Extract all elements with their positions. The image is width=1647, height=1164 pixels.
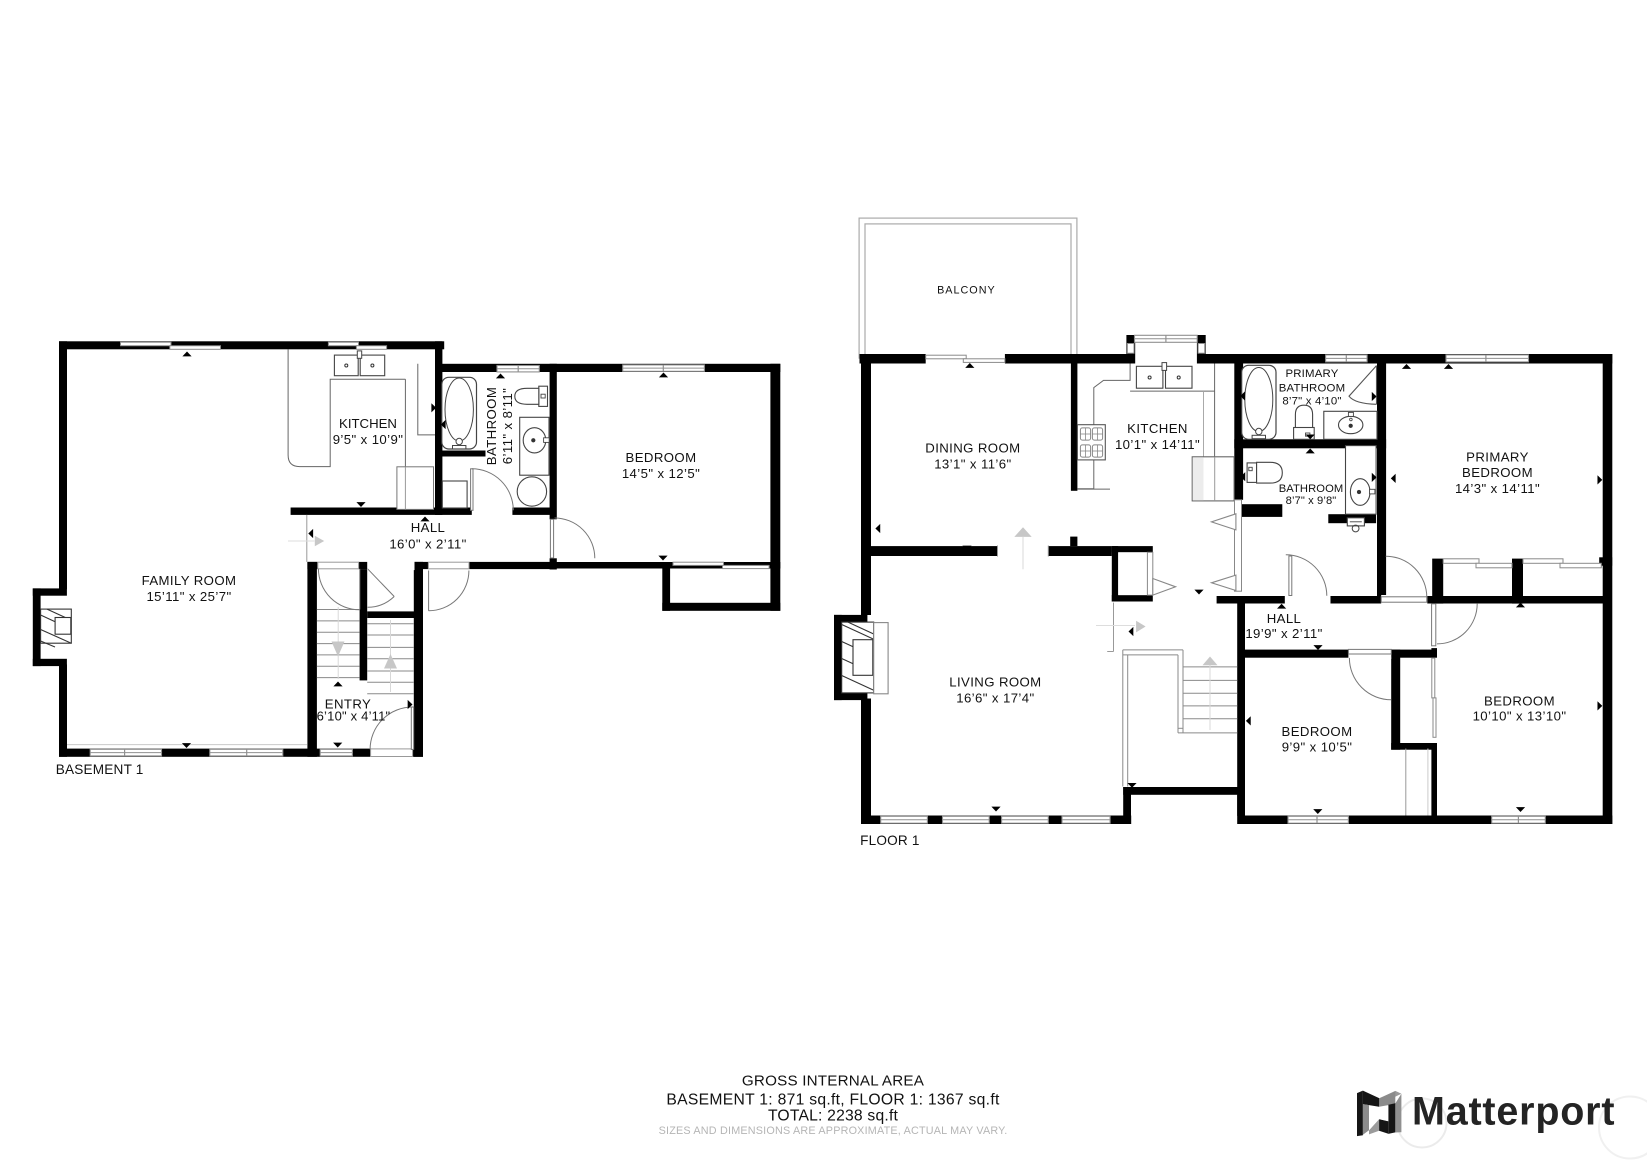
svg-text:LIVING ROOM: LIVING ROOM: [949, 675, 1041, 690]
svg-text:14’3" x 14’11": 14’3" x 14’11": [1455, 481, 1540, 496]
svg-text:BEDROOM: BEDROOM: [1282, 724, 1353, 739]
svg-text:HALL: HALL: [411, 520, 446, 535]
svg-text:DINING ROOM: DINING ROOM: [925, 441, 1020, 456]
svg-text:HALL: HALL: [1267, 611, 1302, 626]
svg-text:6’10" x 4’11": 6’10" x 4’11": [317, 709, 391, 724]
svg-text:8’7" x 9’8": 8’7" x 9’8": [1286, 495, 1337, 507]
svg-text:BASEMENT 1: 871 sq.ft, FLOOR 1: BASEMENT 1: 871 sq.ft, FLOOR 1: 1367 sq.…: [666, 1092, 1000, 1109]
svg-text:FAMILY ROOM: FAMILY ROOM: [142, 573, 237, 588]
svg-text:TOTAL: 2238 sq.ft: TOTAL: 2238 sq.ft: [768, 1108, 899, 1125]
svg-text:BEDROOM: BEDROOM: [1484, 694, 1555, 709]
svg-text:14’5" x 12’5": 14’5" x 12’5": [622, 466, 700, 481]
svg-text:9’9" x 10’5": 9’9" x 10’5": [1282, 740, 1353, 755]
svg-text:10’10" x 13’10": 10’10" x 13’10": [1473, 709, 1567, 724]
svg-text:PRIMARY: PRIMARY: [1466, 450, 1529, 465]
svg-text:BALCONY: BALCONY: [937, 285, 996, 297]
svg-text:10’1" x 14’11": 10’1" x 14’11": [1115, 437, 1200, 452]
svg-text:16’0" x 2’11": 16’0" x 2’11": [389, 537, 466, 552]
svg-text:KITCHEN: KITCHEN: [339, 416, 397, 431]
svg-text:BATHROOM: BATHROOM: [1279, 483, 1344, 495]
svg-text:PRIMARY: PRIMARY: [1285, 368, 1338, 380]
svg-text:BEDROOM: BEDROOM: [626, 450, 697, 465]
svg-text:19’9" x 2’11": 19’9" x 2’11": [1245, 626, 1322, 641]
svg-text:SIZES AND DIMENSIONS ARE APPRO: SIZES AND DIMENSIONS ARE APPROXIMATE, AC…: [659, 1125, 1008, 1137]
svg-text:13’1" x 11’6": 13’1" x 11’6": [934, 457, 1011, 472]
svg-text:BEDROOM: BEDROOM: [1462, 465, 1533, 480]
svg-text:FLOOR 1: FLOOR 1: [860, 833, 920, 848]
svg-text:9’5" x 10’9": 9’5" x 10’9": [333, 432, 404, 447]
svg-text:KITCHEN: KITCHEN: [1127, 421, 1188, 436]
svg-text:Matterport: Matterport: [1412, 1090, 1615, 1134]
svg-text:15’11" x 25’7": 15’11" x 25’7": [146, 589, 231, 604]
svg-text:GROSS INTERNAL AREA: GROSS INTERNAL AREA: [742, 1073, 925, 1090]
svg-text:6’11" x 8’11": 6’11" x 8’11": [500, 388, 515, 464]
svg-text:BATHROOM: BATHROOM: [484, 387, 499, 465]
svg-text:16’6" x 17’4": 16’6" x 17’4": [956, 691, 1034, 706]
svg-text:8’7" x 4’10": 8’7" x 4’10": [1282, 396, 1341, 408]
svg-text:BASEMENT 1: BASEMENT 1: [56, 762, 144, 777]
svg-text:BATHROOM: BATHROOM: [1279, 382, 1346, 394]
